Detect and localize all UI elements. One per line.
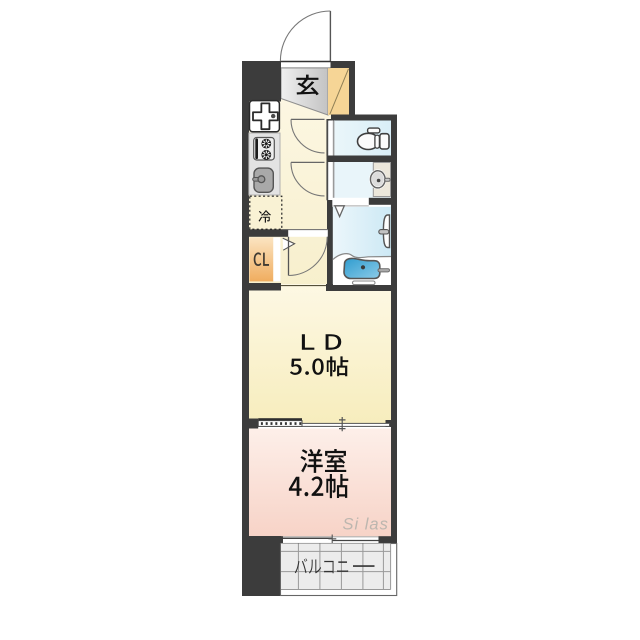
svg-text:Si las: Si las [343, 516, 389, 534]
